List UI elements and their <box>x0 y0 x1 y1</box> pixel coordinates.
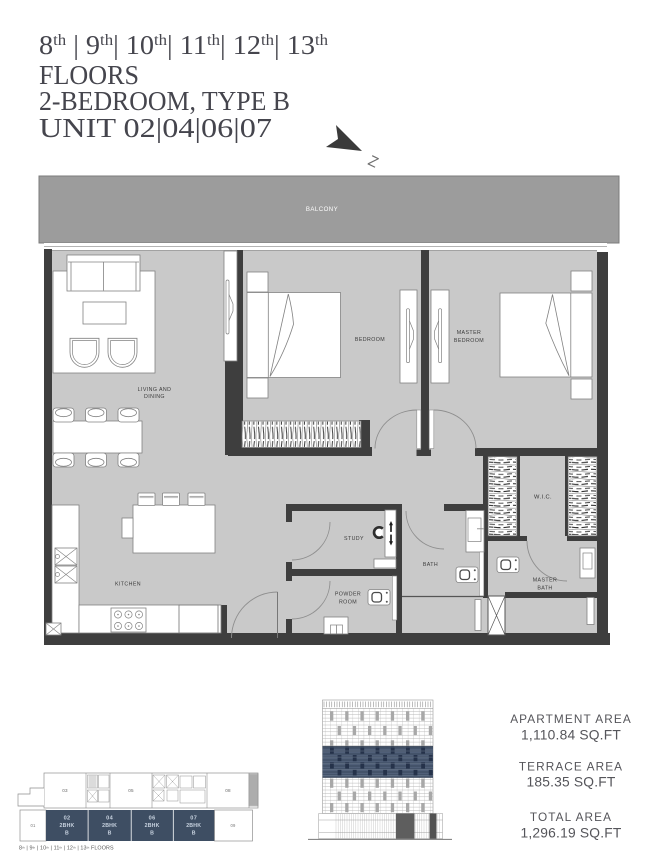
svg-text:B: B <box>192 831 196 837</box>
svg-text:08: 08 <box>225 788 231 793</box>
svg-text:B: B <box>108 831 112 837</box>
svg-text:8th | 9th | 10th | 11th | 12th: 8th | 9th | 10th | 11th | 12th | 13th FL… <box>19 845 114 851</box>
svg-text:ROOM: ROOM <box>339 600 357 606</box>
svg-text:TOTAL AREA: TOTAL AREA <box>530 810 612 824</box>
svg-text:UNIT 02|04|06|07: UNIT 02|04|06|07 <box>39 113 272 143</box>
svg-text:2BHK: 2BHK <box>60 823 75 829</box>
svg-text:B: B <box>65 831 69 837</box>
svg-text:2BHK: 2BHK <box>145 823 160 829</box>
svg-text:04: 04 <box>106 816 113 822</box>
svg-text:02: 02 <box>64 816 71 822</box>
svg-text:2BHK: 2BHK <box>102 823 117 829</box>
svg-text:05: 05 <box>128 788 134 793</box>
svg-text:B: B <box>150 831 154 837</box>
svg-text:03: 03 <box>62 788 68 793</box>
svg-text:MASTER: MASTER <box>457 330 481 336</box>
svg-text:BALCONY: BALCONY <box>306 206 338 213</box>
svg-text:TERRACE AREA: TERRACE AREA <box>519 760 623 774</box>
svg-text:1,296.19 SQ.FT: 1,296.19 SQ.FT <box>521 826 622 841</box>
svg-text:185.35 SQ.FT: 185.35 SQ.FT <box>526 775 615 790</box>
svg-text:1,110.84 SQ.FT: 1,110.84 SQ.FT <box>521 728 621 743</box>
svg-text:BATH: BATH <box>423 562 438 568</box>
svg-text:06: 06 <box>149 816 156 822</box>
svg-text:W.I.C.: W.I.C. <box>534 495 552 501</box>
svg-text:STUDY: STUDY <box>344 536 364 542</box>
svg-text:01: 01 <box>30 823 36 828</box>
svg-text:POWDER: POWDER <box>335 592 361 598</box>
svg-text:BEDROOM: BEDROOM <box>355 337 385 343</box>
svg-text:07: 07 <box>190 816 197 822</box>
svg-text:Z: Z <box>365 152 381 171</box>
svg-text:2BHK: 2BHK <box>186 823 201 829</box>
svg-text:APARTMENT AREA: APARTMENT AREA <box>510 712 632 726</box>
svg-text:LIVING AND: LIVING AND <box>138 387 172 393</box>
svg-text:2-BEDROOM, TYPE B: 2-BEDROOM, TYPE B <box>39 86 290 116</box>
svg-text:DINING: DINING <box>144 394 165 400</box>
svg-text:BATH: BATH <box>537 586 552 592</box>
svg-text:KITCHEN: KITCHEN <box>115 582 141 588</box>
svg-text:09: 09 <box>230 823 236 828</box>
svg-text:8th | 9th| 10th| 11th| 12th| 1: 8th | 9th| 10th| 11th| 12th| 13th <box>39 30 328 60</box>
svg-text:MASTER: MASTER <box>533 578 557 584</box>
svg-text:BEDROOM: BEDROOM <box>454 338 484 344</box>
